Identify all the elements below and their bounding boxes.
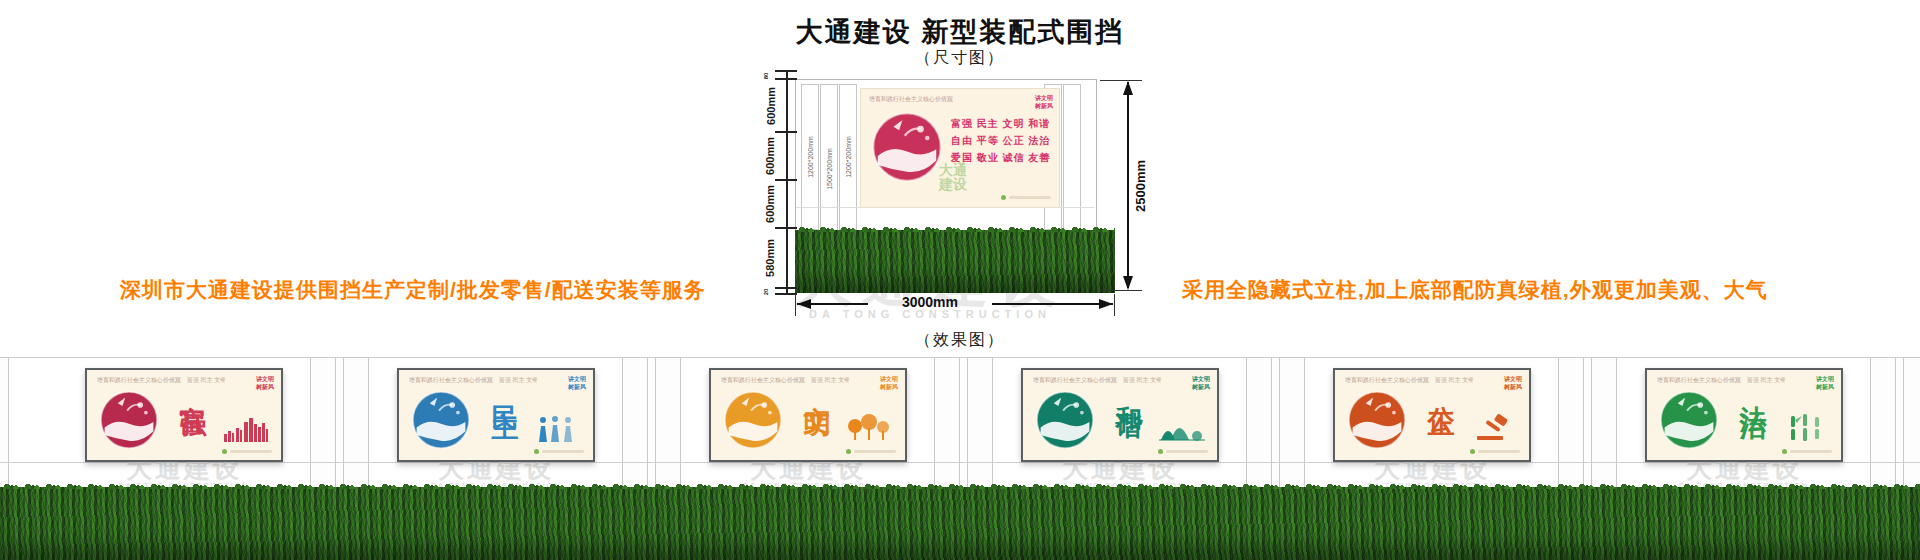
green-dot-icon (222, 449, 227, 454)
people-icon (535, 414, 581, 442)
papercut-circle-illustration (411, 390, 471, 450)
fence-posts-background (0, 358, 1920, 489)
panel-fine-print (1470, 449, 1520, 454)
grass-hedge-main (0, 487, 1920, 560)
page-title: 大通建设 新型装配式围挡 (0, 14, 1920, 50)
papercut-circle-illustration (1659, 390, 1719, 450)
panel-corner-badge: 讲文明树新风 (880, 376, 898, 391)
papercut-circle-illustration (1347, 390, 1407, 450)
height-segment-label: 600mm (763, 132, 777, 180)
value-panel-minzhu: 培育和践行社会主义核心价值观 富强 民主 文明 和谐 自由 平等 公正 法治 爱… (397, 368, 595, 462)
papercut-circle-illustration (99, 390, 159, 450)
dimension-tick (775, 293, 797, 295)
fine-print-line (1478, 450, 1520, 453)
papercut-circle-illustration (723, 390, 783, 450)
panel-fine-print (846, 449, 896, 454)
core-values-rows: 富强 民主 文明 和谐 自由 平等 公正 法治 爱国 敬业 诚信 友善 (951, 115, 1050, 166)
green-dot-icon (1782, 449, 1787, 454)
panel-word: 文明 (799, 384, 835, 452)
green-dot-icon (846, 449, 851, 454)
panel-corner-badge: 讲文明树新风 (568, 376, 586, 391)
green-dot-icon (1158, 449, 1163, 454)
trees-icon (847, 414, 893, 442)
panel-fine-print (1782, 449, 1832, 454)
grass-hedge-diagram (795, 230, 1115, 293)
green-dot-icon (534, 449, 539, 454)
effect-caption: （效果图） (0, 330, 1920, 351)
dimension-tick (775, 131, 797, 133)
height-segment-label: 600mm (764, 80, 778, 133)
feature-note: 采用全隐藏式立柱,加上底部配防真绿植,外观更加美观、大气 (1182, 276, 1768, 304)
value-panel-fazhi: 培育和践行社会主义核心价值观 富强 民主 文明 和谐 自由 平等 公正 法治 爱… (1645, 368, 1843, 462)
green-dot-icon (1470, 449, 1475, 454)
total-width-dimension-line (992, 303, 1113, 305)
mountains-icon (1159, 414, 1205, 442)
extension-line (795, 294, 796, 316)
panel-word: 公正 (1423, 384, 1459, 452)
green-dot-icon (1001, 195, 1006, 200)
extension-line (1100, 80, 1142, 81)
extension-line (1100, 290, 1142, 291)
total-width-label: 3000mm (868, 294, 992, 310)
bamboo-icon (1783, 414, 1829, 442)
fine-print-line (1790, 450, 1832, 453)
arrowhead-down-icon (1123, 276, 1133, 290)
panel-fine-print (534, 449, 584, 454)
fine-print-line (854, 450, 896, 453)
total-height-dimension-line (1127, 82, 1129, 288)
fine-print-line (1166, 450, 1208, 453)
papercut-circle-illustration (871, 111, 943, 183)
papercut-circle-illustration (1035, 390, 1095, 450)
panel-fine-print (1158, 449, 1208, 454)
dimension-tick (775, 70, 797, 72)
dimension-tick (775, 227, 797, 229)
values-banner: 培育和践行社会主义核心价值观 讲文明 树新风 富强 民主 文明 和谐 自由 平等… (860, 88, 1060, 208)
panel-fine-print (222, 449, 272, 454)
arrowhead-right-icon (1099, 299, 1113, 309)
post-size-label: 1200*200mm (807, 136, 814, 178)
banner-corner-badge: 讲文明 树新风 (1035, 95, 1053, 110)
panel-word: 富强 (175, 384, 211, 452)
hidden-post: 1200*200mm (801, 84, 819, 230)
dimension-tick (775, 179, 797, 181)
height-dimension-line (786, 71, 788, 295)
post-size-label: 1200*200mm (845, 136, 852, 178)
arrowhead-left-icon (797, 299, 811, 309)
banner-fine-print (1001, 195, 1051, 200)
hidden-post: 1200*200mm (839, 84, 857, 230)
fine-print-line (542, 450, 584, 453)
panel-corner-badge: 讲文明树新风 (256, 376, 274, 391)
value-panel-gongzheng: 培育和践行社会主义核心价值观 富强 民主 文明 和谐 自由 平等 公正 法治 爱… (1333, 368, 1531, 462)
banner-green-watermark: 大通 建设 (939, 163, 967, 191)
panel-word: 和谐 (1111, 384, 1147, 452)
city-bars-icon (223, 414, 269, 442)
gavel-icon (1471, 414, 1517, 442)
height-offset-label-bottom: 20 (762, 284, 770, 300)
panel-corner-badge: 讲文明树新风 (1504, 376, 1522, 391)
dimension-tick (775, 287, 797, 289)
dimension-tick (775, 78, 797, 80)
arrowhead-up-icon (1123, 81, 1133, 95)
banner-header-text: 培育和践行社会主义核心价值观 (869, 95, 989, 104)
post-size-label: 1500*200mm (826, 148, 833, 190)
extension-line (1114, 294, 1115, 316)
value-panel-fuqiang: 培育和践行社会主义核心价值观 富强 民主 文明 和谐 自由 平等 公正 法治 爱… (85, 368, 283, 462)
service-note: 深圳市大通建设提供围挡生产定制/批发零售/配送安装等服务 (120, 276, 706, 304)
fine-print-line (1009, 196, 1051, 199)
value-panel-wenming: 培育和践行社会主义核心价值观 富强 民主 文明 和谐 自由 平等 公正 法治 爱… (709, 368, 907, 462)
dimension-caption: （尺寸图） (0, 48, 1920, 69)
panel-word: 民主 (487, 384, 523, 452)
value-panel-hexie: 培育和践行社会主义核心价值观 富强 民主 文明 和谐 自由 平等 公正 法治 爱… (1021, 368, 1219, 462)
height-segment-label: 600mm (763, 180, 777, 228)
fine-print-line (230, 450, 272, 453)
panel-word: 法治 (1735, 384, 1771, 452)
panel-corner-badge: 讲文明树新风 (1816, 376, 1834, 391)
panel-corner-badge: 讲文明树新风 (1192, 376, 1210, 391)
poster-canvas: 大通建设 新型装配式围挡 （尺寸图） 深圳市大通建设提供围挡生产定制/批发零售/… (0, 0, 1920, 560)
height-segment-label: 580mm (763, 228, 777, 288)
total-height-label: 2500mm (1132, 146, 1148, 226)
fence-bottom-rail-line (0, 462, 1920, 463)
